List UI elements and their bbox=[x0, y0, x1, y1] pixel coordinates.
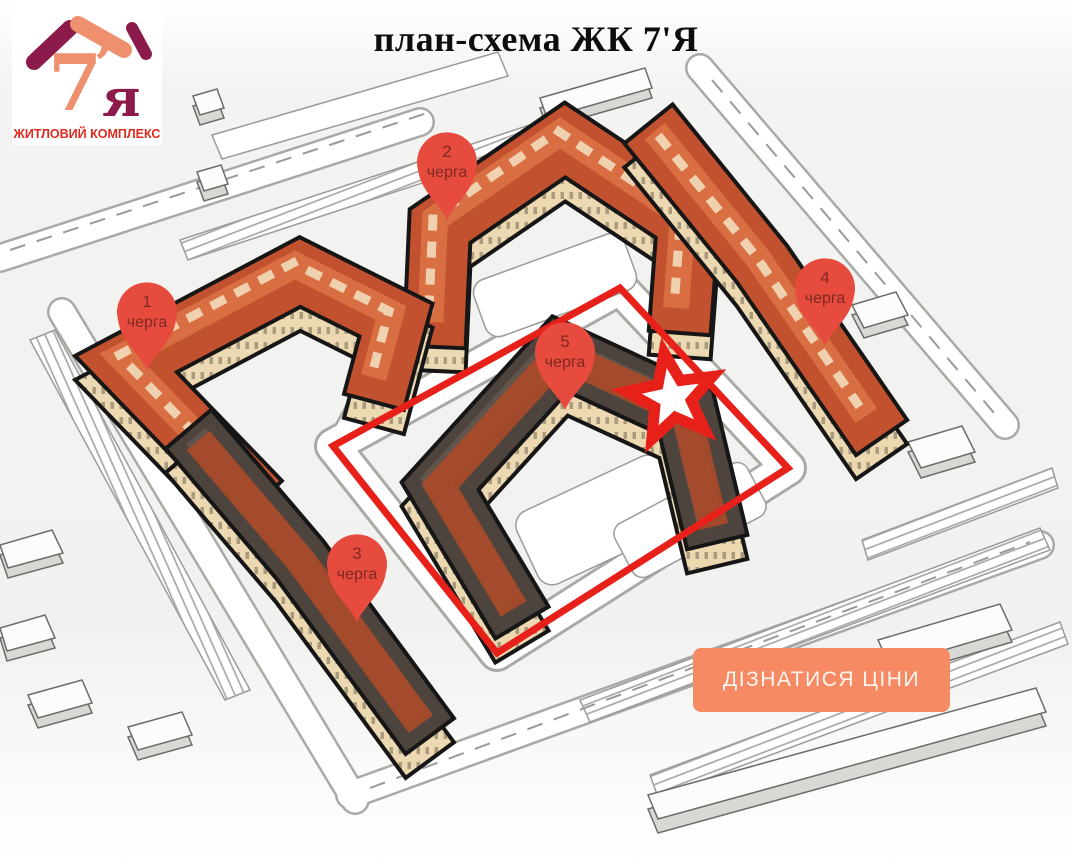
marker-label: черга bbox=[337, 566, 378, 583]
logo[interactable]: 7 ’ я ЖИТЛОВИЙ КОМПЛЕКС bbox=[12, 2, 162, 145]
logo-subtitle: ЖИТЛОВИЙ КОМПЛЕКС bbox=[13, 126, 161, 141]
marker-number: 4 bbox=[820, 268, 829, 287]
marker-number: 2 bbox=[442, 142, 451, 161]
page: 1 черга 2 черга 3 черга 4 черга 5 че bbox=[0, 0, 1072, 867]
marker-number: 5 bbox=[560, 332, 569, 351]
marker-label: черга bbox=[127, 314, 168, 331]
marker-number: 1 bbox=[142, 292, 151, 311]
logo-glyph-ya: я bbox=[102, 68, 140, 129]
marker-label: черга bbox=[427, 164, 468, 181]
marker-label: черга bbox=[545, 354, 586, 371]
find-out-prices-button[interactable]: ДІЗНАТИСЯ ЦІНИ bbox=[693, 648, 950, 712]
marker-number: 3 bbox=[352, 544, 361, 563]
marker-label: черга bbox=[805, 290, 846, 307]
